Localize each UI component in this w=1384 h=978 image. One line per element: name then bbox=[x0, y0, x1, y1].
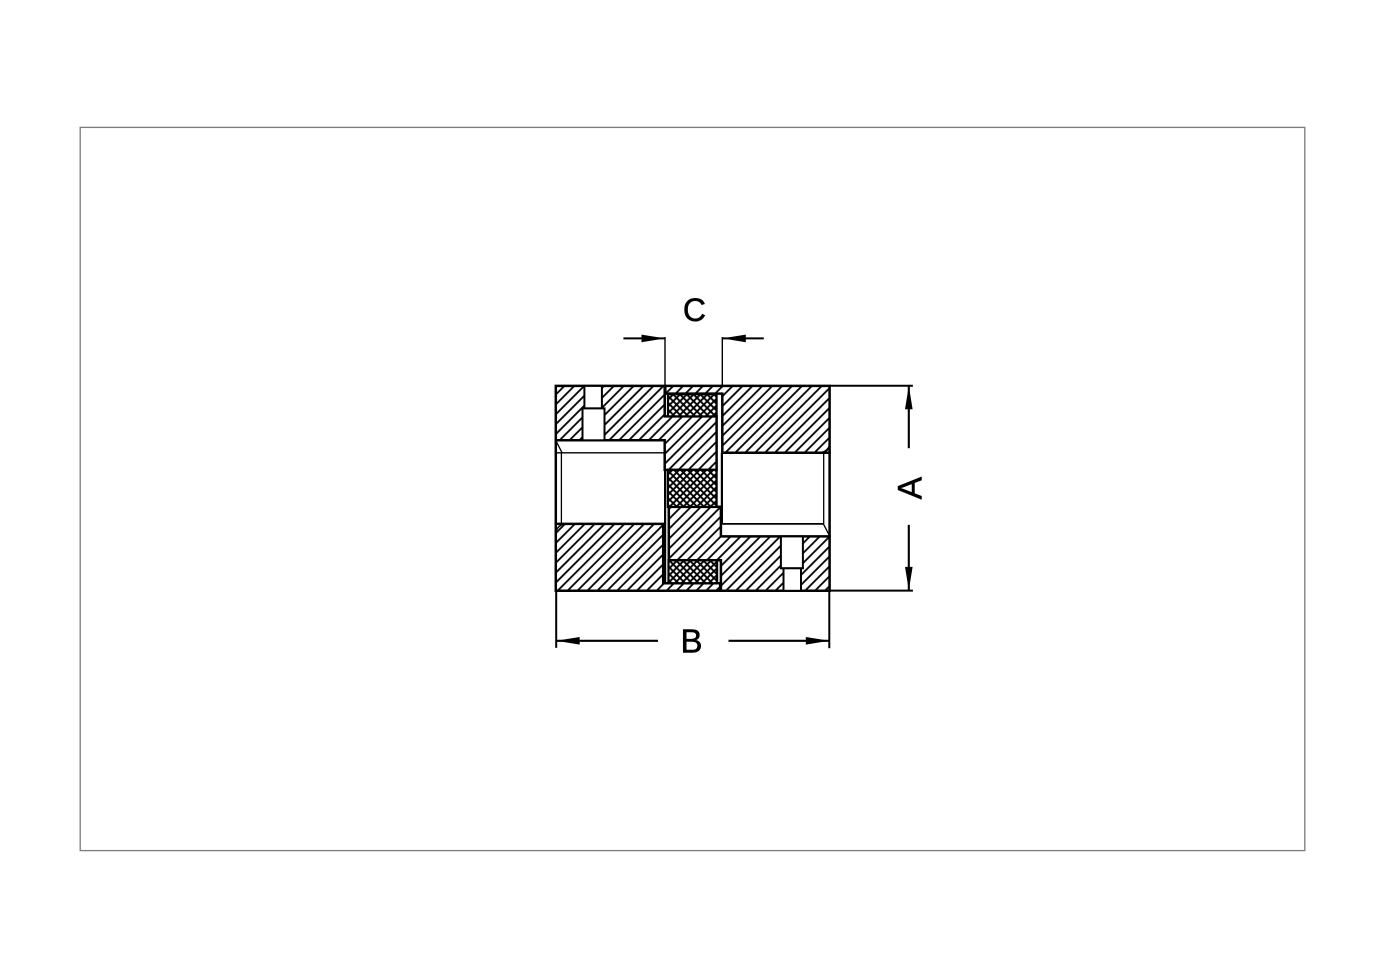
svg-text:B: B bbox=[680, 623, 702, 660]
svg-text:A: A bbox=[892, 477, 930, 500]
svg-text:C: C bbox=[683, 292, 706, 328]
